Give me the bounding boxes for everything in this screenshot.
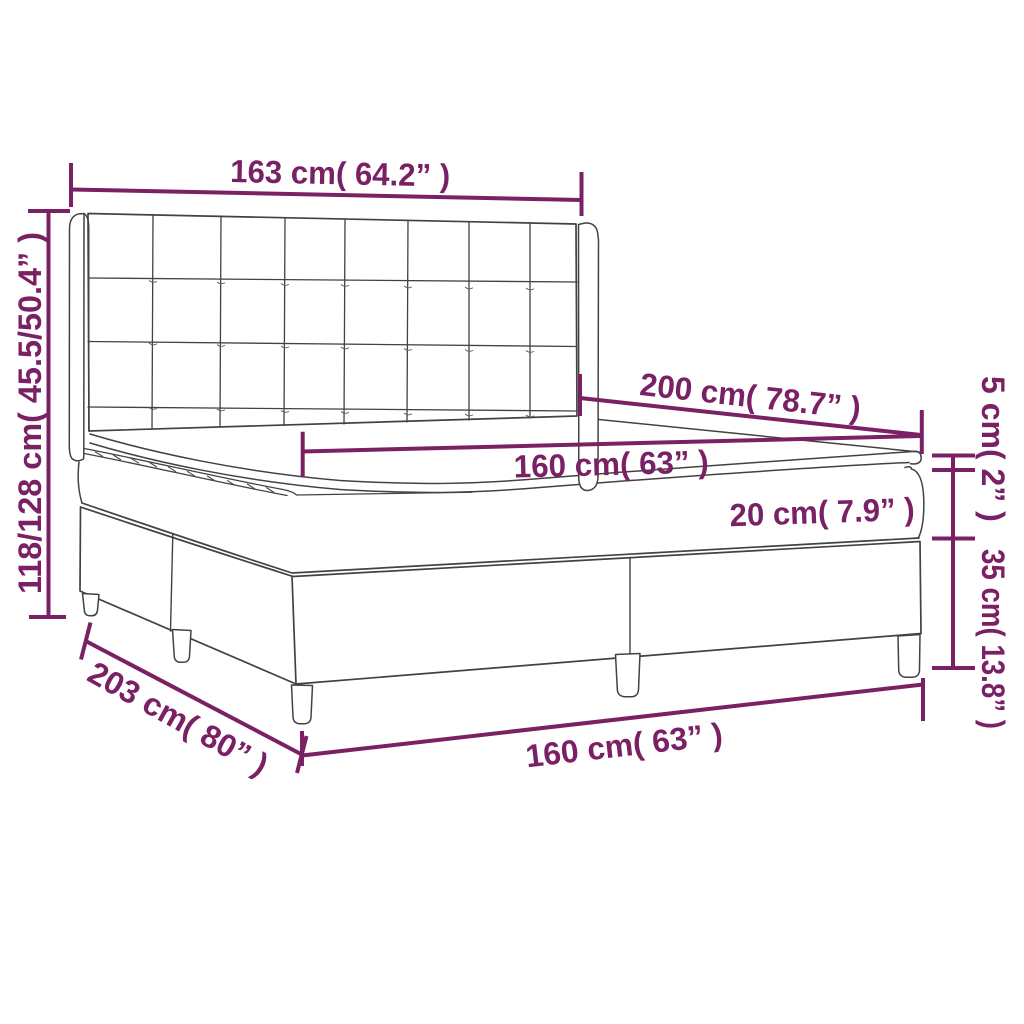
svg-text:160 cm( 63” ): 160 cm( 63” ) [513,443,709,484]
svg-text:35 cm( 13.8” ): 35 cm( 13.8” ) [975,549,1011,729]
svg-text:118/128 cm( 45.5/50.4” ): 118/128 cm( 45.5/50.4” ) [12,232,48,594]
svg-text:20 cm( 7.9” ): 20 cm( 7.9” ) [729,491,915,533]
svg-text:5 cm( 2” ): 5 cm( 2” ) [975,376,1011,522]
svg-text:163 cm( 64.2” ): 163 cm( 64.2” ) [230,153,451,194]
